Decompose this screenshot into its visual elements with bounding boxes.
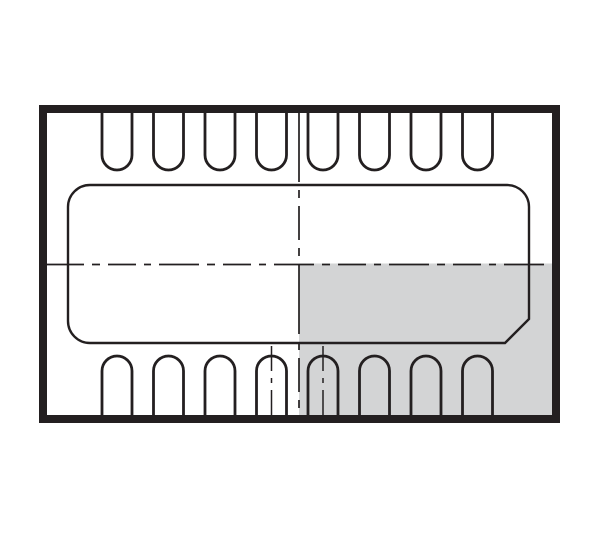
ic-package-top-view-drawing xyxy=(0,0,600,533)
package-diagram-figure xyxy=(0,0,600,533)
